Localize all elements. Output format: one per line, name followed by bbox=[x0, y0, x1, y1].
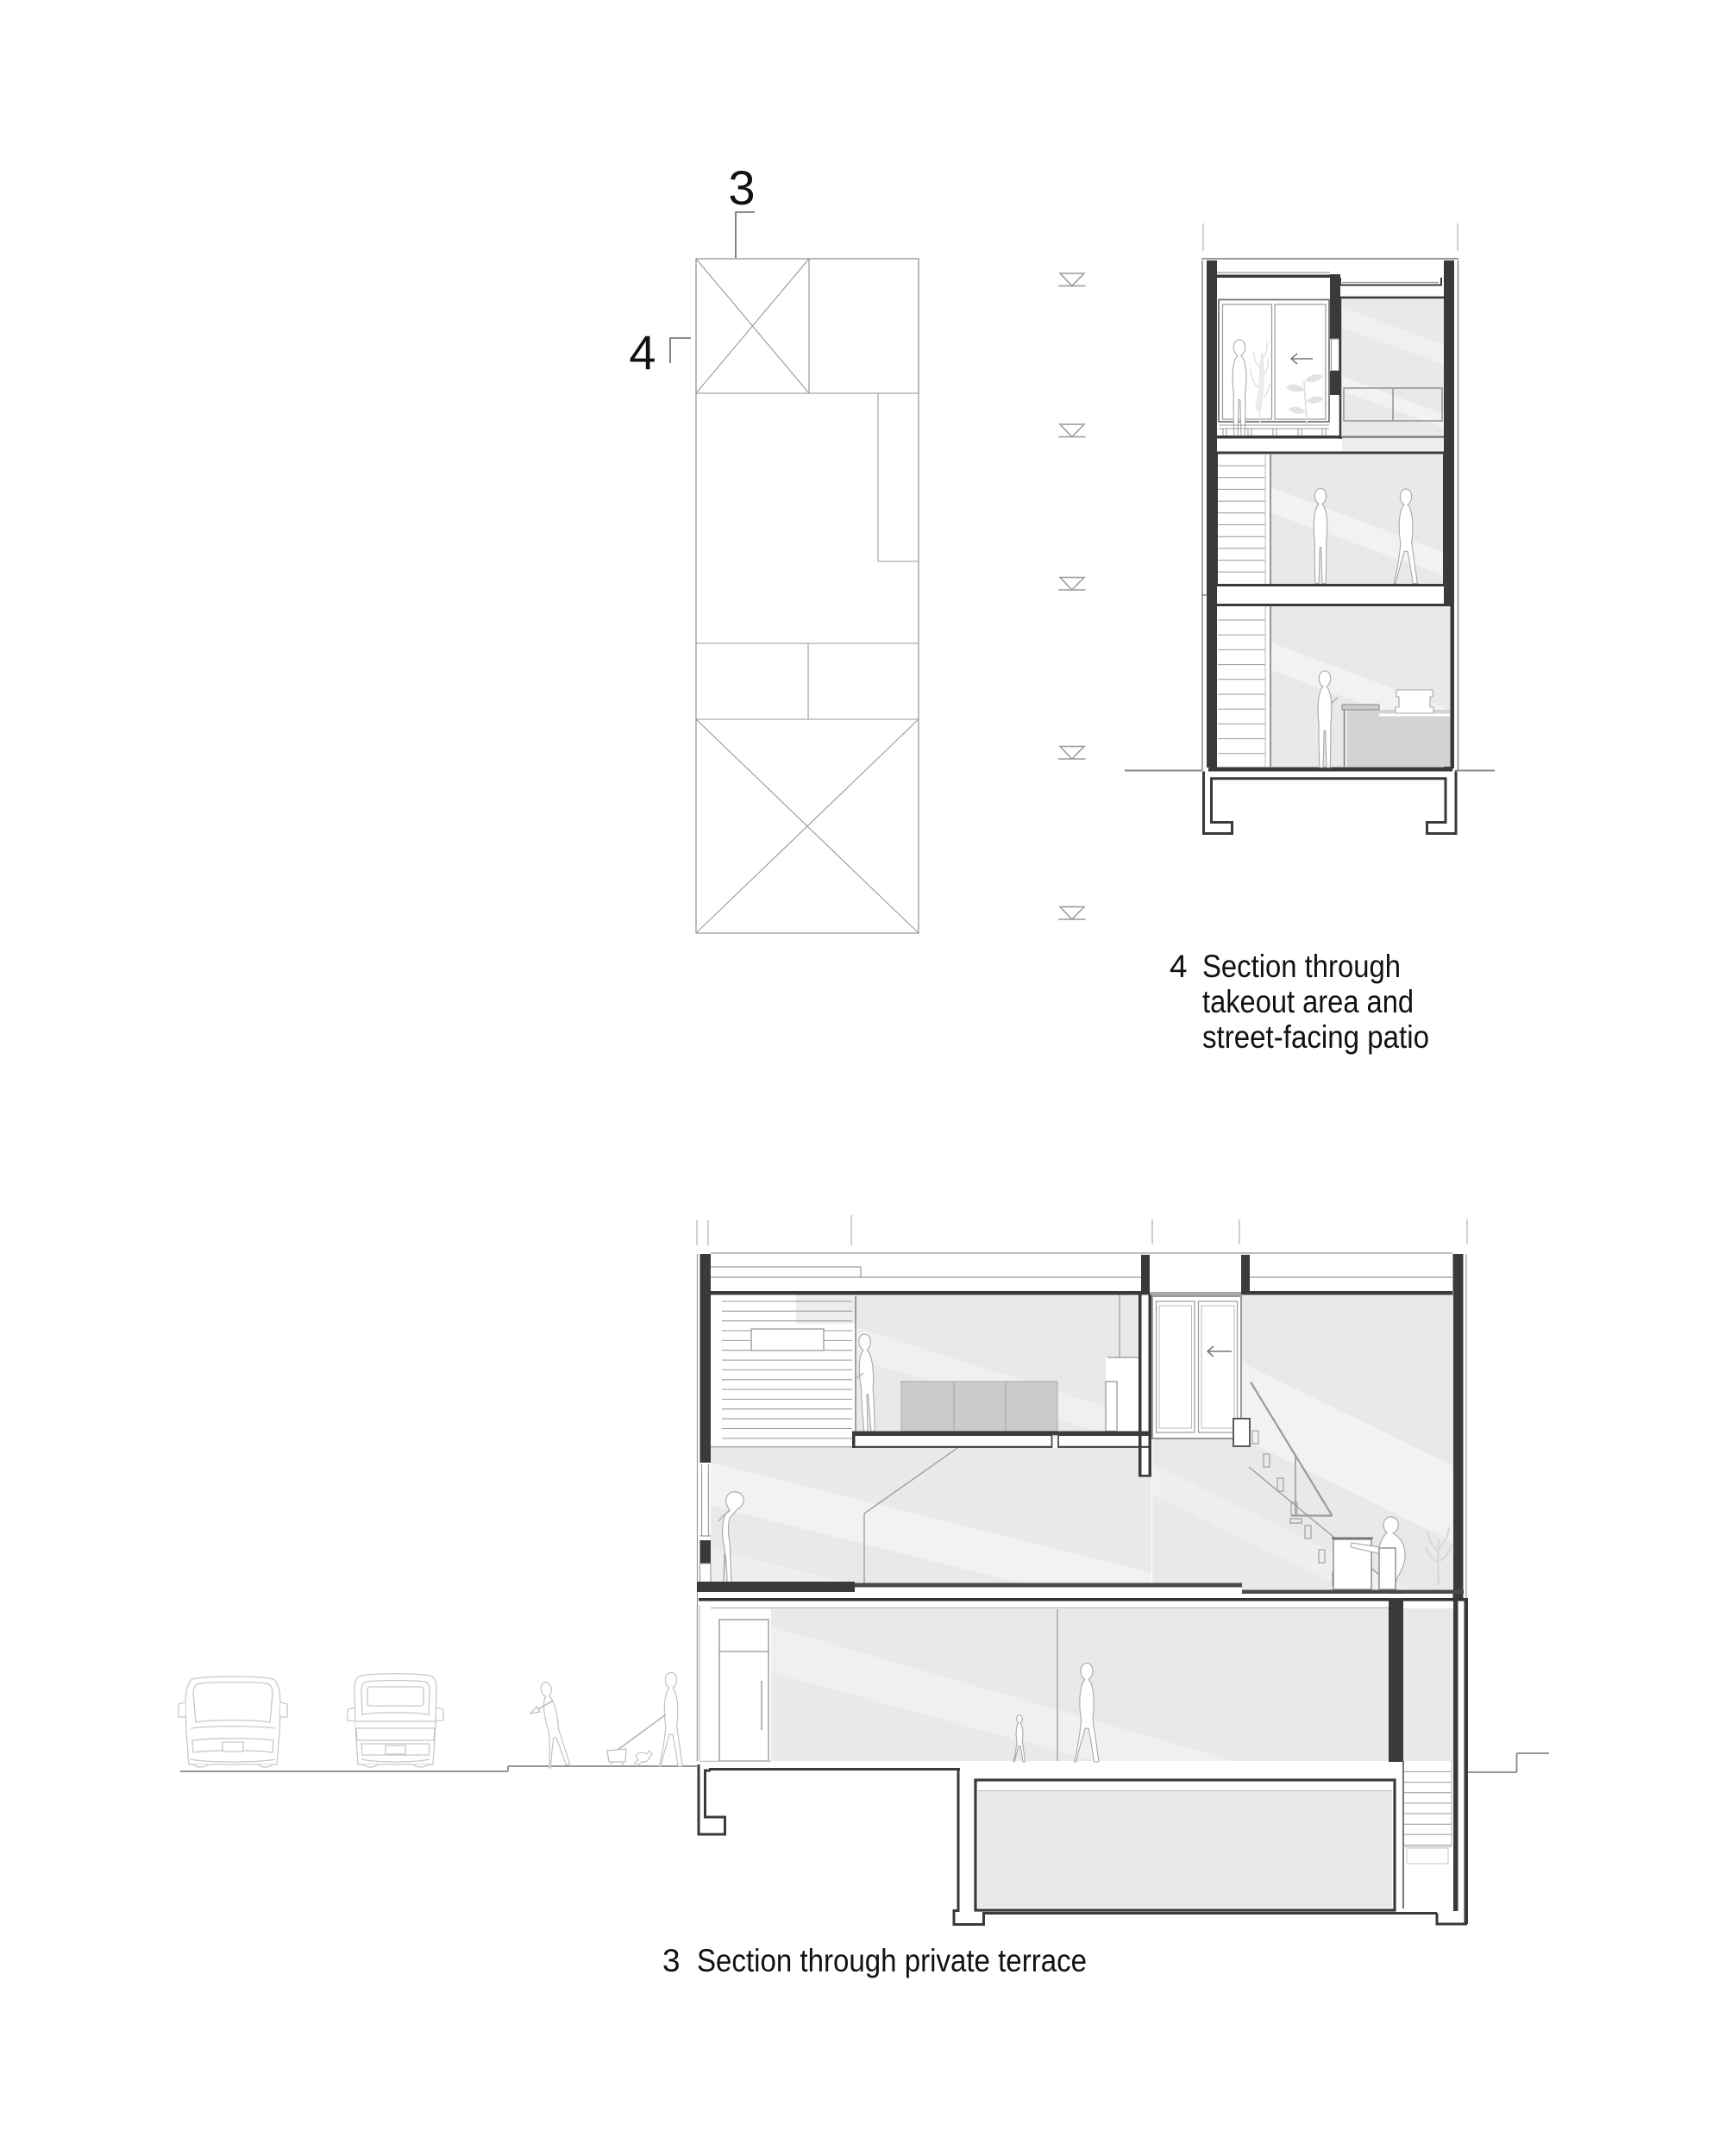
svg-text:takeout area and: takeout area and bbox=[1202, 984, 1414, 1019]
svg-text:3: 3 bbox=[662, 1943, 681, 1978]
svg-text:street-facing patio: street-facing patio bbox=[1202, 1019, 1429, 1055]
svg-text:Section through: Section through bbox=[1202, 949, 1401, 984]
svg-text:4: 4 bbox=[629, 325, 655, 379]
svg-text:Section through private terrac: Section through private terrace bbox=[697, 1943, 1087, 1978]
svg-text:4: 4 bbox=[1170, 949, 1188, 984]
svg-text:3: 3 bbox=[728, 160, 755, 215]
